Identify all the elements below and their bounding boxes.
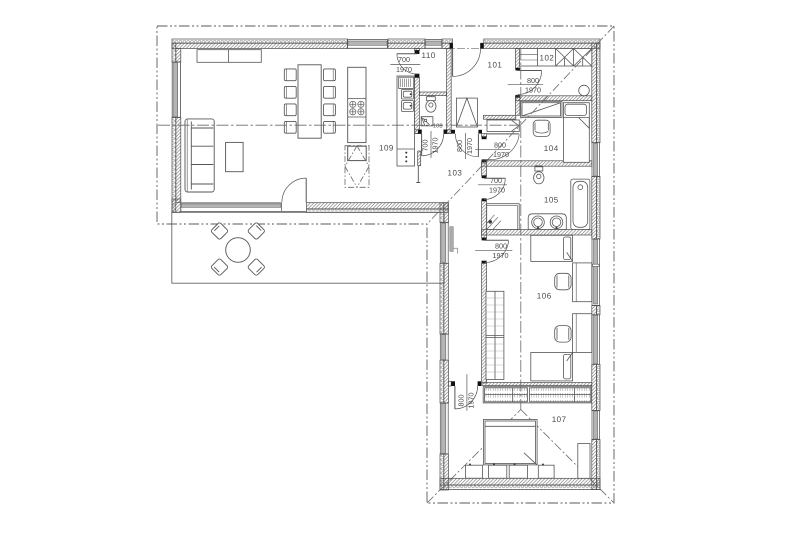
svg-text:1970: 1970 [466, 393, 475, 409]
svg-text:104: 104 [544, 144, 559, 153]
svg-text:1970: 1970 [465, 138, 474, 154]
svg-text:800: 800 [494, 140, 506, 149]
svg-text:101: 101 [488, 61, 503, 70]
svg-text:105: 105 [544, 196, 559, 205]
svg-text:700: 700 [490, 176, 502, 185]
svg-text:1970: 1970 [525, 86, 541, 95]
svg-text:1970: 1970 [489, 186, 505, 195]
svg-text:108: 108 [433, 123, 443, 130]
svg-text:102: 102 [540, 54, 555, 63]
svg-text:106: 106 [537, 292, 552, 301]
svg-text:700: 700 [421, 140, 430, 152]
svg-text:110: 110 [422, 51, 436, 60]
svg-text:800: 800 [456, 395, 465, 407]
svg-text:700: 700 [398, 55, 410, 64]
svg-text:107: 107 [552, 415, 567, 424]
svg-text:800: 800 [527, 76, 539, 85]
svg-text:800: 800 [455, 140, 464, 152]
svg-text:103: 103 [448, 169, 463, 178]
svg-text:800: 800 [495, 241, 507, 250]
svg-text:1970: 1970 [431, 138, 440, 154]
svg-text:1970: 1970 [396, 65, 412, 74]
svg-text:109: 109 [379, 144, 394, 153]
svg-text:1970: 1970 [493, 251, 509, 260]
